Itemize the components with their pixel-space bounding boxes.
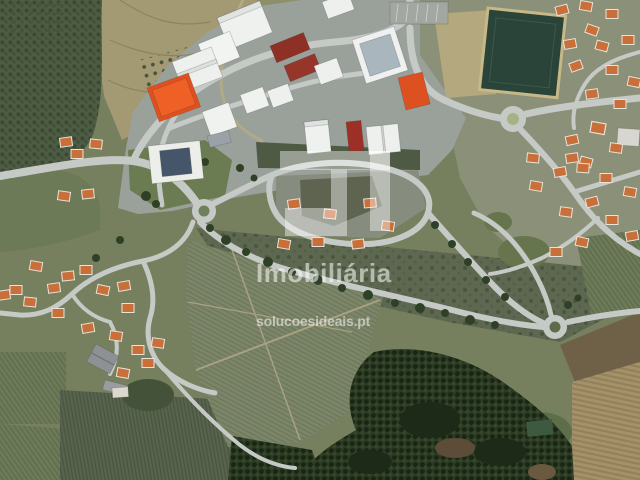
watermark-brand-text: Imobiliária: [256, 258, 392, 289]
sports-field: [479, 8, 565, 98]
logo-block: [285, 208, 331, 236]
logo-block: [331, 170, 347, 236]
logo-block: [370, 151, 390, 231]
satellite-map-image: Imobiliária solucoesideais.pt: [0, 0, 640, 480]
sports-court-small: [526, 419, 553, 437]
aerial-photo: [0, 0, 640, 480]
watermark-website-text: solucoesideais.pt: [256, 313, 370, 329]
